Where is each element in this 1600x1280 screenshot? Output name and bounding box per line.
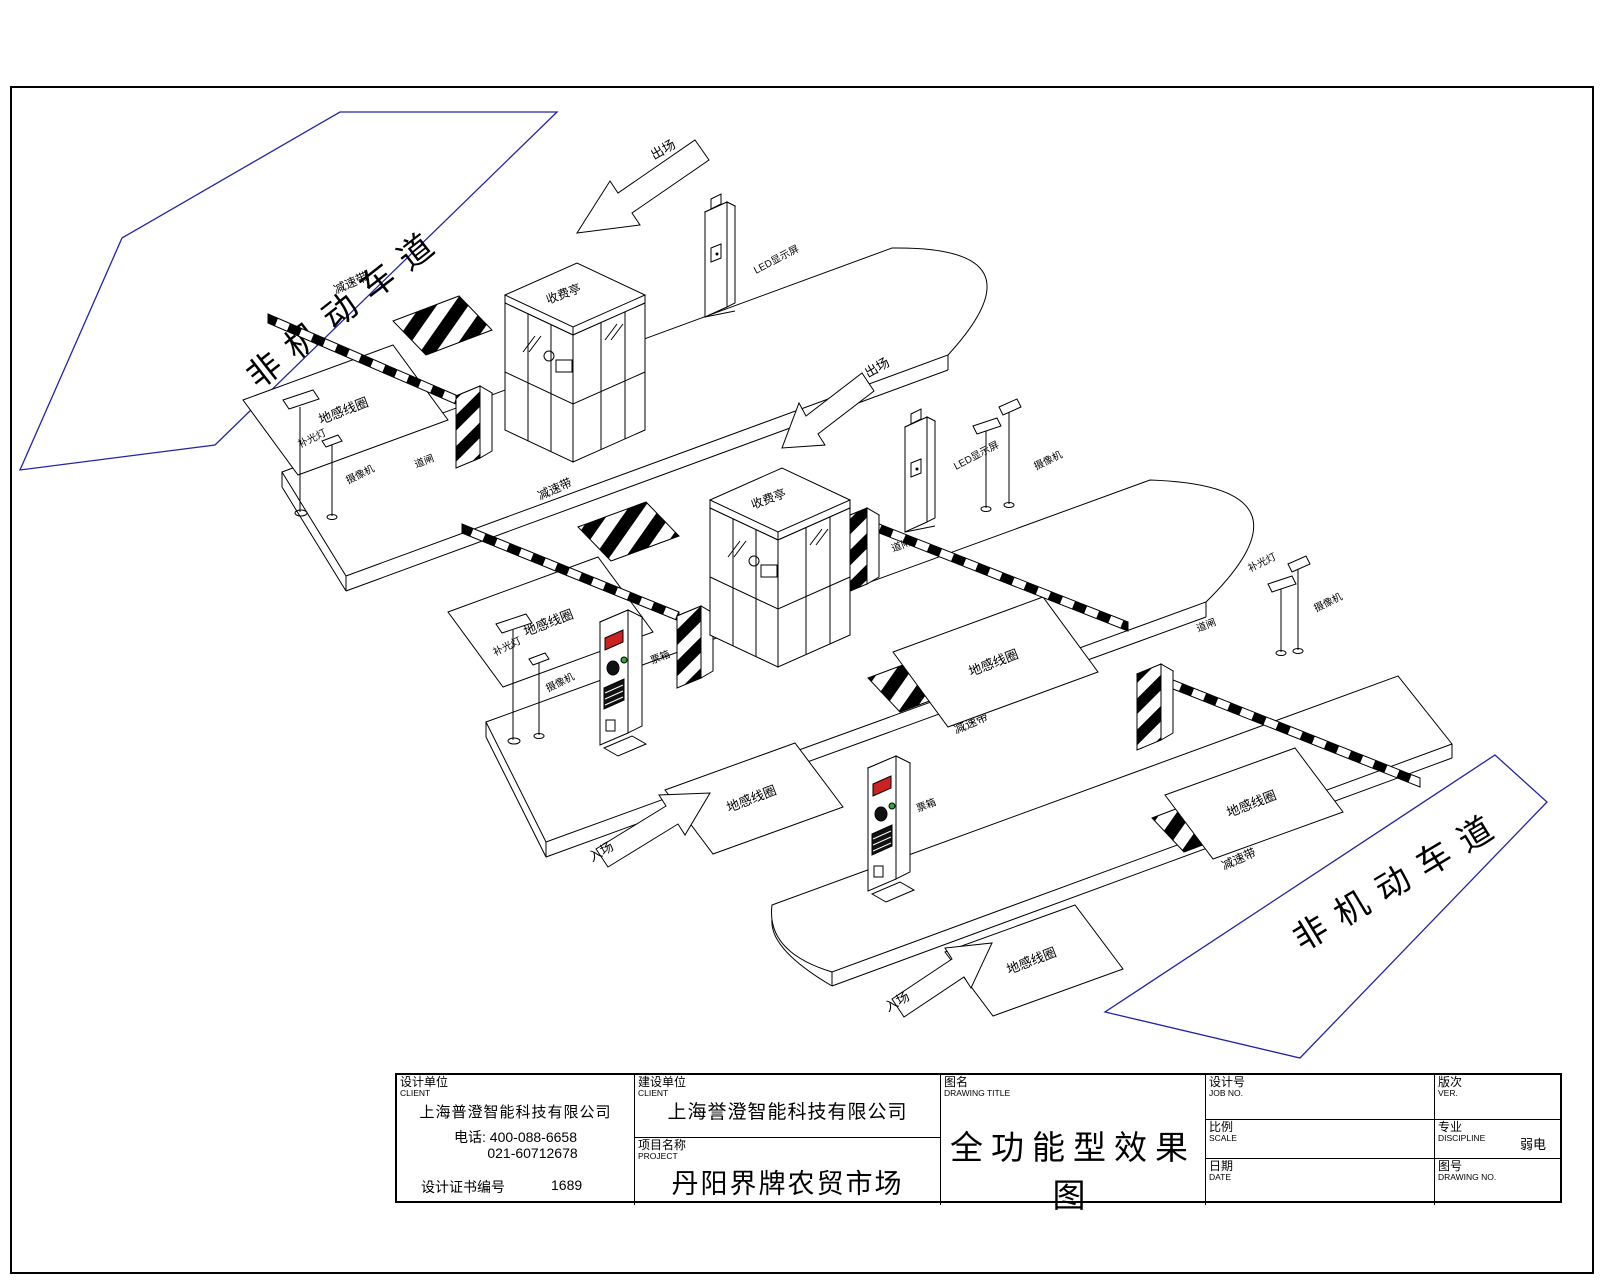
exit-arrow xyxy=(577,140,709,233)
camera xyxy=(999,399,1021,415)
drawing-no-en-label: DRAWING NO. xyxy=(1438,1173,1496,1182)
date-zh-label: 日期 xyxy=(1209,1160,1233,1173)
design-unit-zh-label: 设计单位 xyxy=(400,1076,448,1089)
version-en-label: VER. xyxy=(1438,1089,1462,1098)
design-unit-en-label: CLIENT xyxy=(400,1089,448,1098)
camera-label: 摄像机 xyxy=(1032,448,1065,473)
drawing-title-zh-label: 图名 xyxy=(944,1076,1010,1089)
camera xyxy=(1288,556,1310,572)
project-en-label: PROJECT xyxy=(638,1152,686,1161)
discipline-cell: 专业 DISCIPLINE 弱电 xyxy=(1434,1119,1562,1158)
discipline-value: 弱电 xyxy=(1520,1134,1546,1153)
scale-cell: 比例 SCALE xyxy=(1205,1119,1434,1158)
job-no-zh-label: 设计号 xyxy=(1209,1076,1245,1089)
discipline-zh-label: 专业 xyxy=(1438,1121,1485,1134)
cert-label: 设计证书编号 xyxy=(421,1177,505,1197)
non-motor-zone-label: 非机动车道 xyxy=(1287,803,1512,959)
toll-booth: 收费亭 xyxy=(505,263,645,462)
drawing-title: 全功能型效果图 xyxy=(941,1121,1205,1217)
fill-light-label: 补光灯 xyxy=(1246,550,1279,575)
scale-en-label: SCALE xyxy=(1209,1134,1237,1143)
title-block: 设计单位 CLIENT 上海普澄智能科技有限公司 电话: 400-088-665… xyxy=(395,1073,1562,1203)
machine-button xyxy=(889,803,895,809)
machine-speaker xyxy=(607,661,619,675)
design-unit-cell: 设计单位 CLIENT 上海普澄智能科技有限公司 电话: 400-088-665… xyxy=(397,1075,634,1205)
gate-cabinet xyxy=(677,606,701,688)
drawing-no-cell: 图号 DRAWING NO. xyxy=(1434,1158,1562,1205)
version-cell: 版次 VER. xyxy=(1434,1075,1562,1119)
project-cell: 项目名称 PROJECT 丹阳界牌农贸市场 xyxy=(634,1137,940,1205)
scale-zh-label: 比例 xyxy=(1209,1121,1237,1134)
gate-cabinet xyxy=(1137,664,1161,750)
date-en-label: DATE xyxy=(1209,1173,1233,1182)
speed-bump xyxy=(578,502,679,561)
gate-cabinet xyxy=(456,386,480,468)
fill-light xyxy=(973,418,1001,434)
gate-cabinet-side xyxy=(480,386,492,458)
cert-number: 1689 xyxy=(551,1177,582,1197)
job-no-cell: 设计号 JOB NO. xyxy=(1205,1075,1434,1119)
booth-monitor xyxy=(761,565,777,577)
ticket-box-label: 票箱 xyxy=(914,795,937,814)
design-phone-1: 电话: 400-088-6658 xyxy=(397,1127,634,1147)
project-zh-label: 项目名称 xyxy=(638,1139,686,1152)
led-display-label: LED显示屏 xyxy=(752,243,801,277)
build-unit-cell: 建设单位 CLIENT 上海誉澄智能科技有限公司 xyxy=(634,1075,940,1137)
design-phone-2: 021-60712678 xyxy=(397,1145,634,1161)
gate-cabinet-side xyxy=(867,508,879,584)
design-company: 上海普澄智能科技有限公司 xyxy=(397,1101,634,1122)
booth-monitor xyxy=(556,360,572,372)
version-zh-label: 版次 xyxy=(1438,1076,1462,1089)
drawing-title-en-label: DRAWING TITLE xyxy=(944,1089,1010,1098)
machine-speaker xyxy=(875,807,887,821)
drawing-title-cell: 图名 DRAWING TITLE 全功能型效果图 xyxy=(940,1075,1205,1205)
led-display-sign xyxy=(905,409,935,532)
fill-light xyxy=(1268,576,1296,592)
discipline-en-label: DISCIPLINE xyxy=(1438,1134,1485,1143)
drawing-no-zh-label: 图号 xyxy=(1438,1160,1496,1173)
machine-button xyxy=(621,657,627,663)
job-no-en-label: JOB NO. xyxy=(1209,1089,1245,1098)
camera-label: 摄像机 xyxy=(1312,590,1345,615)
project-name: 丹阳界牌农贸市场 xyxy=(635,1162,940,1201)
led-display-label: LED显示屏 xyxy=(952,439,1001,473)
toll-booth: 收费亭 xyxy=(710,468,850,667)
gate-cabinet-side xyxy=(1161,664,1173,740)
speed-bump xyxy=(393,296,492,355)
drawing-sheet: 非机动车道 非机动车道 减速带 减速带 减速带 减速带 地感线圈 地感线圈 地感… xyxy=(0,0,1600,1280)
gate-label: 道闸 xyxy=(1194,615,1217,634)
date-cell: 日期 DATE xyxy=(1205,1158,1434,1205)
build-company: 上海誉澄智能科技有限公司 xyxy=(635,1097,940,1124)
build-unit-zh-label: 建设单位 xyxy=(638,1076,686,1089)
led-display-sign xyxy=(705,194,735,317)
